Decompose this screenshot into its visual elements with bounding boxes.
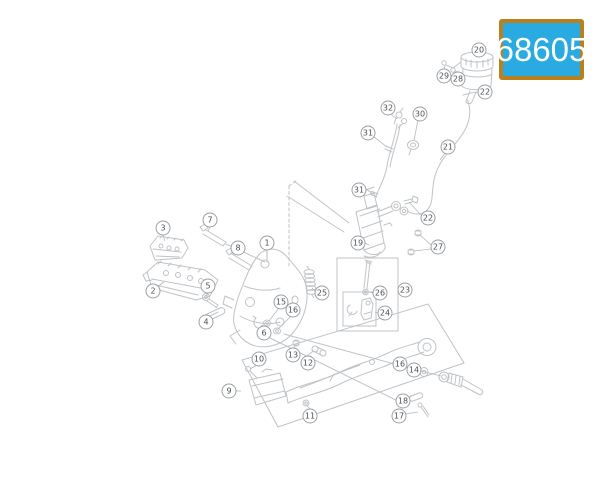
callout-30[interactable]: 30 [413,107,428,122]
callout-29[interactable]: 29 [437,69,452,84]
callout-9[interactable]: 9 [222,384,237,399]
callout-21[interactable]: 21 [441,140,456,155]
callout-31-a[interactable]: 31 [361,126,376,141]
callout-17[interactable]: 17 [392,409,407,424]
callout-20[interactable]: 20 [472,43,487,58]
callout-24[interactable]: 24 [378,306,393,321]
clevis-14 [439,372,483,395]
callout-8[interactable]: 8 [231,241,246,256]
callout-3[interactable]: 3 [156,221,171,236]
callout-6[interactable]: 6 [257,326,272,341]
pushrod [363,260,372,295]
footpeg-top [150,236,188,260]
grommet-30 [408,141,419,156]
callout-10[interactable]: 10 [252,352,267,367]
callout-5[interactable]: 5 [201,279,216,294]
callout-4[interactable]: 4 [199,315,214,330]
callout-22-b[interactable]: 22 [421,211,436,226]
callout-1[interactable]: 1 [260,236,275,251]
callout-7[interactable]: 7 [203,213,218,228]
callout-12[interactable]: 12 [301,356,316,371]
brake-hose-fitting [400,93,471,215]
callout-2[interactable]: 2 [146,284,161,299]
leader-lines [157,54,479,414]
callout-22-a[interactable]: 22 [478,85,493,100]
pin-17-18 [409,393,429,417]
callout-25[interactable]: 25 [315,286,330,301]
callout-28[interactable]: 28 [451,72,466,87]
callout-11[interactable]: 11 [303,409,318,424]
callout-18[interactable]: 18 [396,394,411,409]
callout-32[interactable]: 32 [381,101,396,116]
pedal-assembly-box [242,304,464,427]
banjo-bolt [404,196,418,204]
callout-16-b[interactable]: 16 [393,357,408,372]
callout-31-b[interactable]: 31 [352,183,367,198]
master-cylinder [356,187,401,264]
callout-14[interactable]: 14 [407,363,422,378]
callout-23[interactable]: 23 [398,283,413,298]
callout-13[interactable]: 13 [286,348,301,363]
image-number-badge: 68605 [499,19,584,80]
callout-16-a[interactable]: 16 [286,303,301,318]
callout-27[interactable]: 27 [431,240,446,255]
callout-26[interactable]: 26 [373,286,388,301]
callout-19[interactable]: 19 [351,236,366,251]
pedal-pad [249,369,286,405]
diagram-canvas: 1 2 3 4 5 6 7 8 9 10 11 12 13 14 15 16 1… [0,0,600,480]
dashed-guides [287,181,349,268]
